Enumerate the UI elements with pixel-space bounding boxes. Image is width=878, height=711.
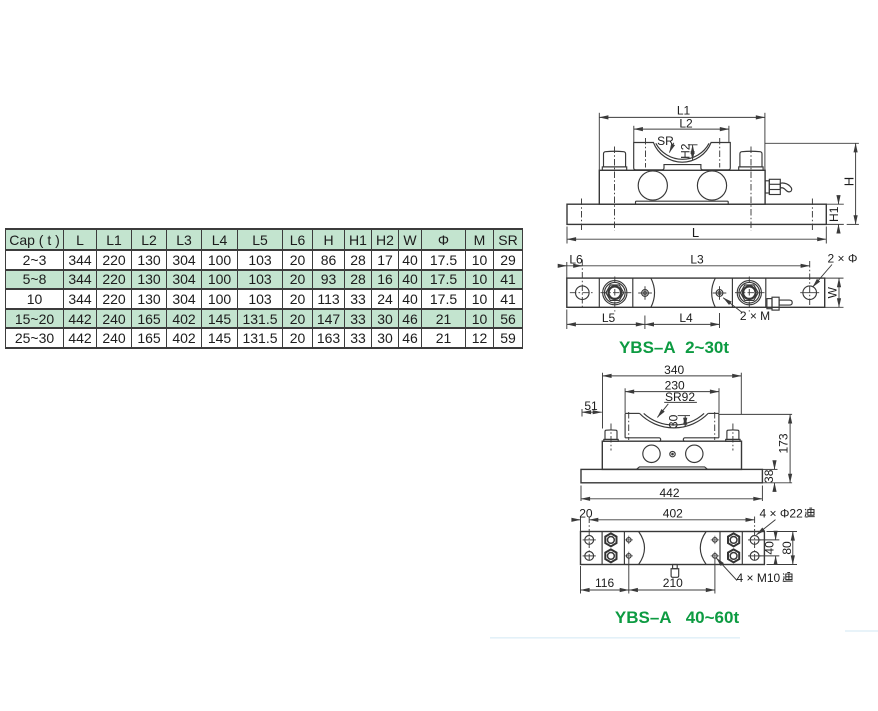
svg-text:SR: SR	[657, 134, 674, 148]
svg-text:210: 210	[663, 576, 683, 590]
svg-text:30: 30	[667, 414, 681, 428]
svg-text:L: L	[692, 225, 699, 240]
svg-text:442: 442	[659, 486, 679, 500]
svg-text:4 × Φ22: 4 × Φ22	[760, 506, 804, 520]
svg-text:H1: H1	[827, 206, 841, 222]
svg-text:340: 340	[664, 363, 684, 377]
svg-text:80: 80	[780, 541, 794, 555]
svg-text:L3: L3	[690, 252, 704, 266]
svg-text:H: H	[842, 177, 857, 186]
svg-text:H2: H2	[678, 143, 692, 159]
svg-text:YBS–A 40~60t: YBS–A 40~60t	[615, 608, 740, 627]
svg-text:2 × M: 2 × M	[740, 309, 770, 323]
svg-text:W: W	[825, 286, 839, 298]
svg-text:402: 402	[663, 506, 683, 520]
svg-text:40: 40	[762, 541, 776, 555]
svg-text:L2: L2	[679, 117, 693, 131]
svg-text:L6: L6	[569, 252, 583, 266]
svg-text:YBS–A 2~30t: YBS–A 2~30t	[619, 338, 729, 357]
svg-text:38: 38	[762, 469, 776, 483]
svg-text:20: 20	[579, 506, 593, 520]
svg-text:L5: L5	[602, 311, 616, 325]
svg-text:173: 173	[777, 433, 791, 453]
svg-text:51: 51	[584, 399, 598, 413]
svg-text:116: 116	[595, 576, 614, 590]
svg-text:L4: L4	[679, 311, 693, 325]
svg-text:4 × M10: 4 × M10	[737, 571, 781, 585]
svg-text:2 × Φ: 2 × Φ	[828, 251, 858, 265]
svg-text:L1: L1	[677, 104, 691, 118]
